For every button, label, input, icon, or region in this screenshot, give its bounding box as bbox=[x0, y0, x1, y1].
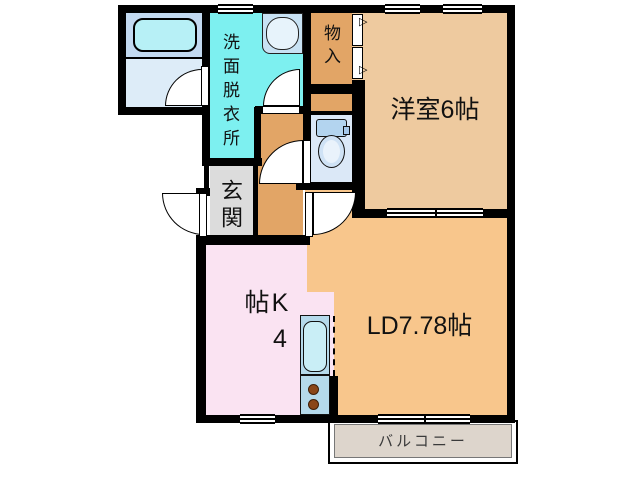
kitchen-boundary-dashed-line bbox=[333, 316, 335, 376]
closet-door-arrow-icon: ▷ bbox=[359, 15, 367, 28]
balcony-label: バルコニー bbox=[378, 434, 468, 449]
window-sash-line bbox=[443, 8, 482, 10]
window-sash-line bbox=[385, 8, 420, 10]
entrance-door-swing bbox=[162, 193, 204, 235]
window bbox=[240, 414, 275, 424]
wall bbox=[303, 5, 311, 115]
door-leaf bbox=[201, 66, 209, 106]
room-label-washroom: 洗面脱衣所 bbox=[221, 33, 238, 168]
window-center-tick bbox=[424, 416, 426, 422]
room-label-kitchen: K4帖 bbox=[242, 289, 292, 389]
room-label-entrance: 玄関 bbox=[219, 179, 241, 237]
balcony: バルコニー bbox=[334, 424, 512, 458]
window-sash-line bbox=[240, 418, 275, 420]
toilet-bowl-inner bbox=[323, 140, 340, 163]
sliding-door-center-tick bbox=[435, 210, 437, 216]
storage-strip bbox=[311, 94, 352, 111]
closet-door-arrow-icon: ▷ bbox=[359, 63, 367, 76]
bathtub bbox=[133, 18, 197, 52]
entrance-door-leaf bbox=[199, 193, 207, 237]
wall bbox=[118, 5, 310, 13]
window bbox=[443, 4, 482, 14]
room-label-western-room: 洋室6帖 bbox=[360, 98, 510, 123]
door-leaf bbox=[303, 140, 311, 184]
wall bbox=[507, 5, 515, 423]
toilet-flush-handle bbox=[343, 126, 350, 135]
stove-burner bbox=[308, 384, 319, 395]
window bbox=[378, 414, 470, 424]
wall bbox=[196, 235, 310, 245]
kitchen-sink bbox=[303, 321, 327, 372]
sliding-door bbox=[387, 208, 483, 218]
floor-plan: バルコニー bbox=[0, 0, 640, 480]
stove-burner bbox=[308, 399, 319, 410]
wall bbox=[118, 5, 126, 115]
window-sash-line bbox=[218, 8, 253, 10]
wall bbox=[253, 166, 258, 245]
room-label-closet: 物入 bbox=[322, 24, 339, 79]
wall bbox=[330, 376, 338, 419]
window bbox=[385, 4, 420, 14]
bathroom-divider-line bbox=[126, 57, 202, 59]
wall bbox=[196, 235, 206, 423]
washbasin-bowl bbox=[266, 17, 299, 50]
room-label-living-dining: LD7.78帖 bbox=[337, 314, 502, 339]
wall bbox=[118, 107, 210, 115]
counter-divider-line bbox=[300, 374, 330, 376]
wall bbox=[311, 111, 352, 115]
door-leaf bbox=[262, 106, 300, 114]
door-leaf bbox=[305, 192, 313, 237]
window bbox=[218, 4, 253, 14]
wall bbox=[254, 107, 261, 166]
